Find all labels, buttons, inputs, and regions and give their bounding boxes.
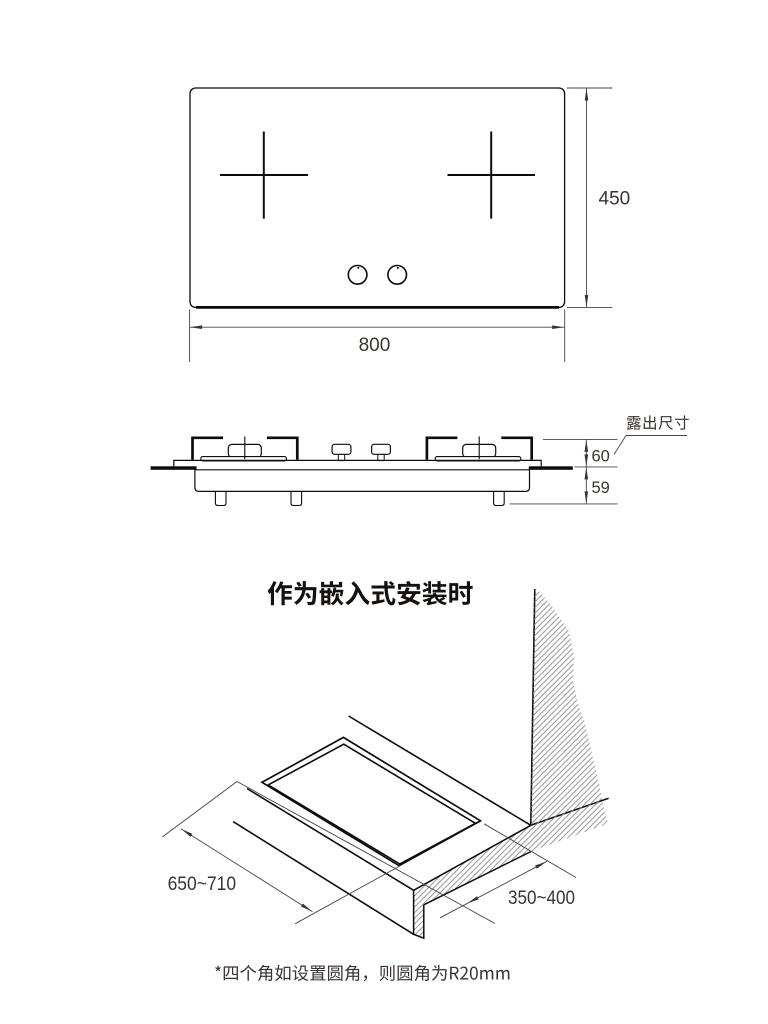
svg-text:350~400: 350~400 (508, 888, 575, 909)
svg-text:650~710: 650~710 (168, 874, 237, 895)
svg-text:450: 450 (599, 189, 631, 210)
svg-text:60: 60 (592, 448, 610, 466)
svg-text:59: 59 (592, 479, 610, 497)
svg-text:800: 800 (359, 335, 391, 356)
